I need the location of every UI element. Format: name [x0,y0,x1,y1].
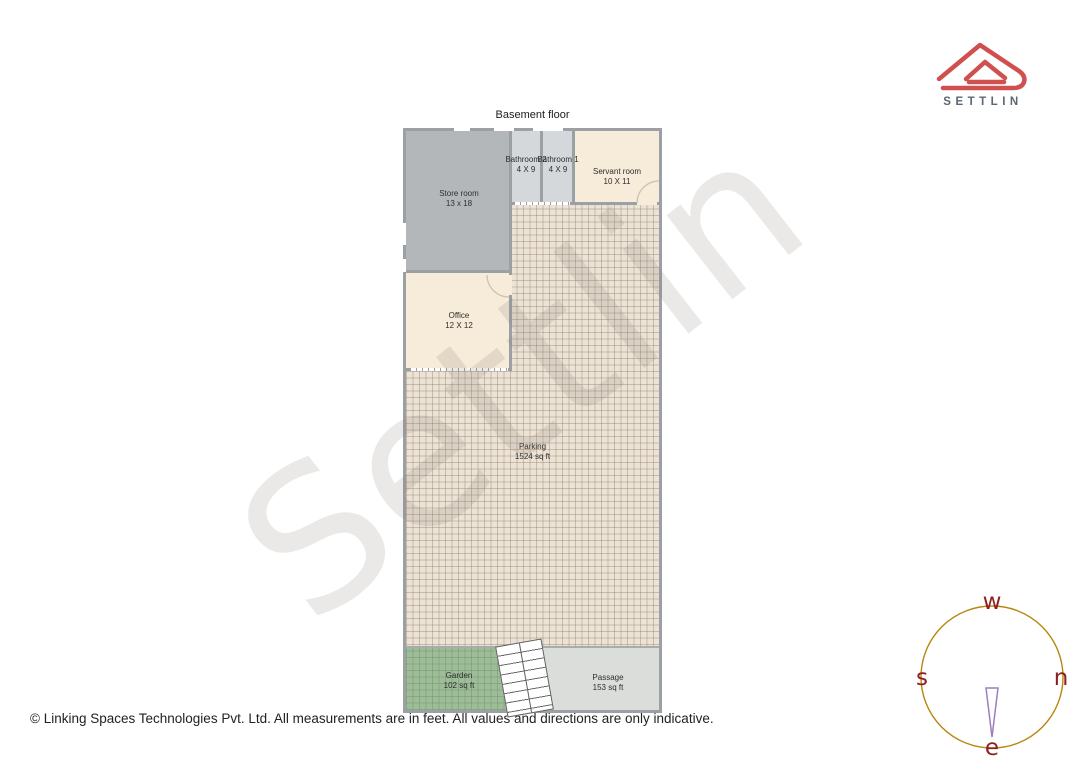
door-gap-store-left [403,223,406,245]
window-gap [494,128,514,131]
room-label-parking: Parking 1524 sq ft [406,442,659,463]
floor-plan-page: Basement floor Store room 1 [0,0,1080,764]
settlin-wordmark: SETTLIN [933,96,1033,108]
room-label-garden: Garden 102 sq ft [406,671,512,692]
room-label-servant-room: Servant room 10 X 11 [575,167,659,188]
room-name: Passage [558,673,658,683]
copyright-disclaimer: © Linking Spaces Technologies Pvt. Ltd. … [30,711,714,726]
room-name: Office [406,311,512,321]
compass-rose-icon [915,598,1075,758]
door-gap-store-left [403,259,406,272]
room-name: Parking [406,442,659,452]
room-name: Garden [406,671,512,681]
door-arc-office [487,275,509,297]
staircase-divider [518,643,532,712]
compass: w n e s [915,598,1075,758]
room-name: Store room [406,189,512,199]
room-name: Servant room [575,167,659,177]
room-dims: 153 sq ft [558,683,658,693]
compass-letter-east: e [985,735,999,761]
room-label-store-room: Store room 13 x 18 [406,189,512,210]
window-band-below-office [410,368,508,371]
room-label-passage: Passage 153 sq ft [558,673,658,694]
compass-letter-west: w [983,589,1002,615]
window-gap [454,128,470,131]
room-dims: 13 x 18 [406,199,512,209]
floor-title: Basement floor [403,109,662,121]
window-gap [533,128,563,131]
compass-letter-south: s [916,665,928,691]
door-gap-office [509,275,512,295]
room-dims: 102 sq ft [406,681,512,691]
floor-plan: Store room 13 x 18 Bathroom 2 4 X 9 Bath… [403,128,662,713]
room-dims: 12 X 12 [406,321,512,331]
window-band-below-bathrooms [514,202,570,205]
room-dims: 1524 sq ft [406,452,659,462]
settlin-house-icon [933,33,1033,93]
room-dims: 10 X 11 [575,177,659,187]
settlin-logo: SETTLIN [933,33,1033,108]
room-name: Bathroom 1 [530,155,586,165]
compass-letter-north: n [1054,665,1069,691]
room-label-office: Office 12 X 12 [406,311,512,332]
